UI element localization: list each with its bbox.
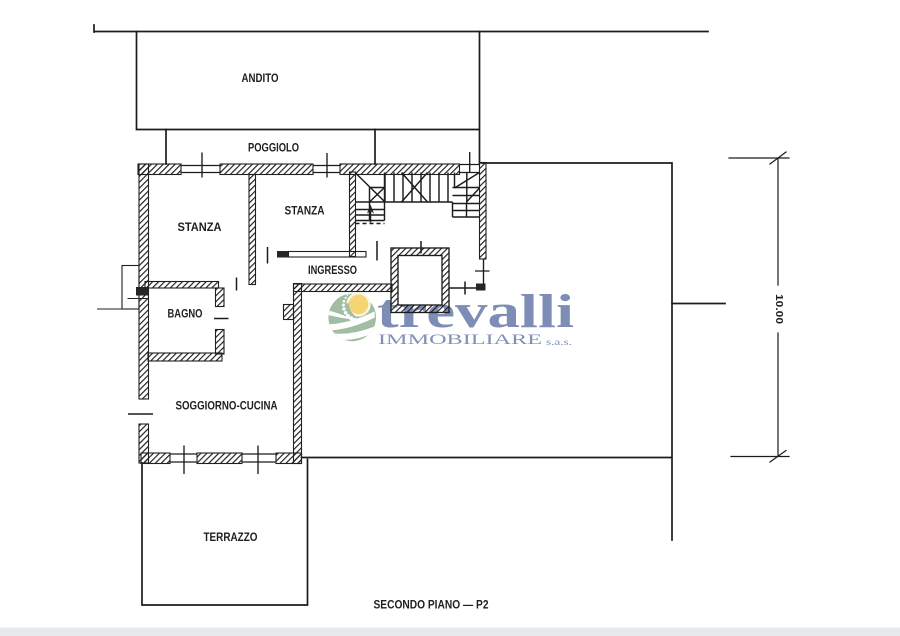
- svg-text:s.a.s.: s.a.s.: [546, 338, 572, 348]
- svg-text:IMMOBILIARE: IMMOBILIARE: [378, 332, 542, 348]
- svg-text:STANZA: STANZA: [285, 204, 325, 218]
- svg-text:POGGIOLO: POGGIOLO: [248, 143, 299, 155]
- svg-text:10.00: 10.00: [773, 294, 785, 324]
- svg-text:SOGGIORNO-CUCINA: SOGGIORNO-CUCINA: [176, 401, 278, 413]
- svg-text:TERRAZZO: TERRAZZO: [204, 532, 258, 544]
- svg-text:SECONDO PIANO — P2: SECONDO PIANO — P2: [374, 600, 489, 612]
- svg-text:ANDITO: ANDITO: [242, 73, 279, 85]
- svg-text:STANZA: STANZA: [178, 220, 222, 234]
- svg-text:BAGNO: BAGNO: [168, 309, 203, 321]
- svg-text:INGRESSO: INGRESSO: [308, 265, 357, 277]
